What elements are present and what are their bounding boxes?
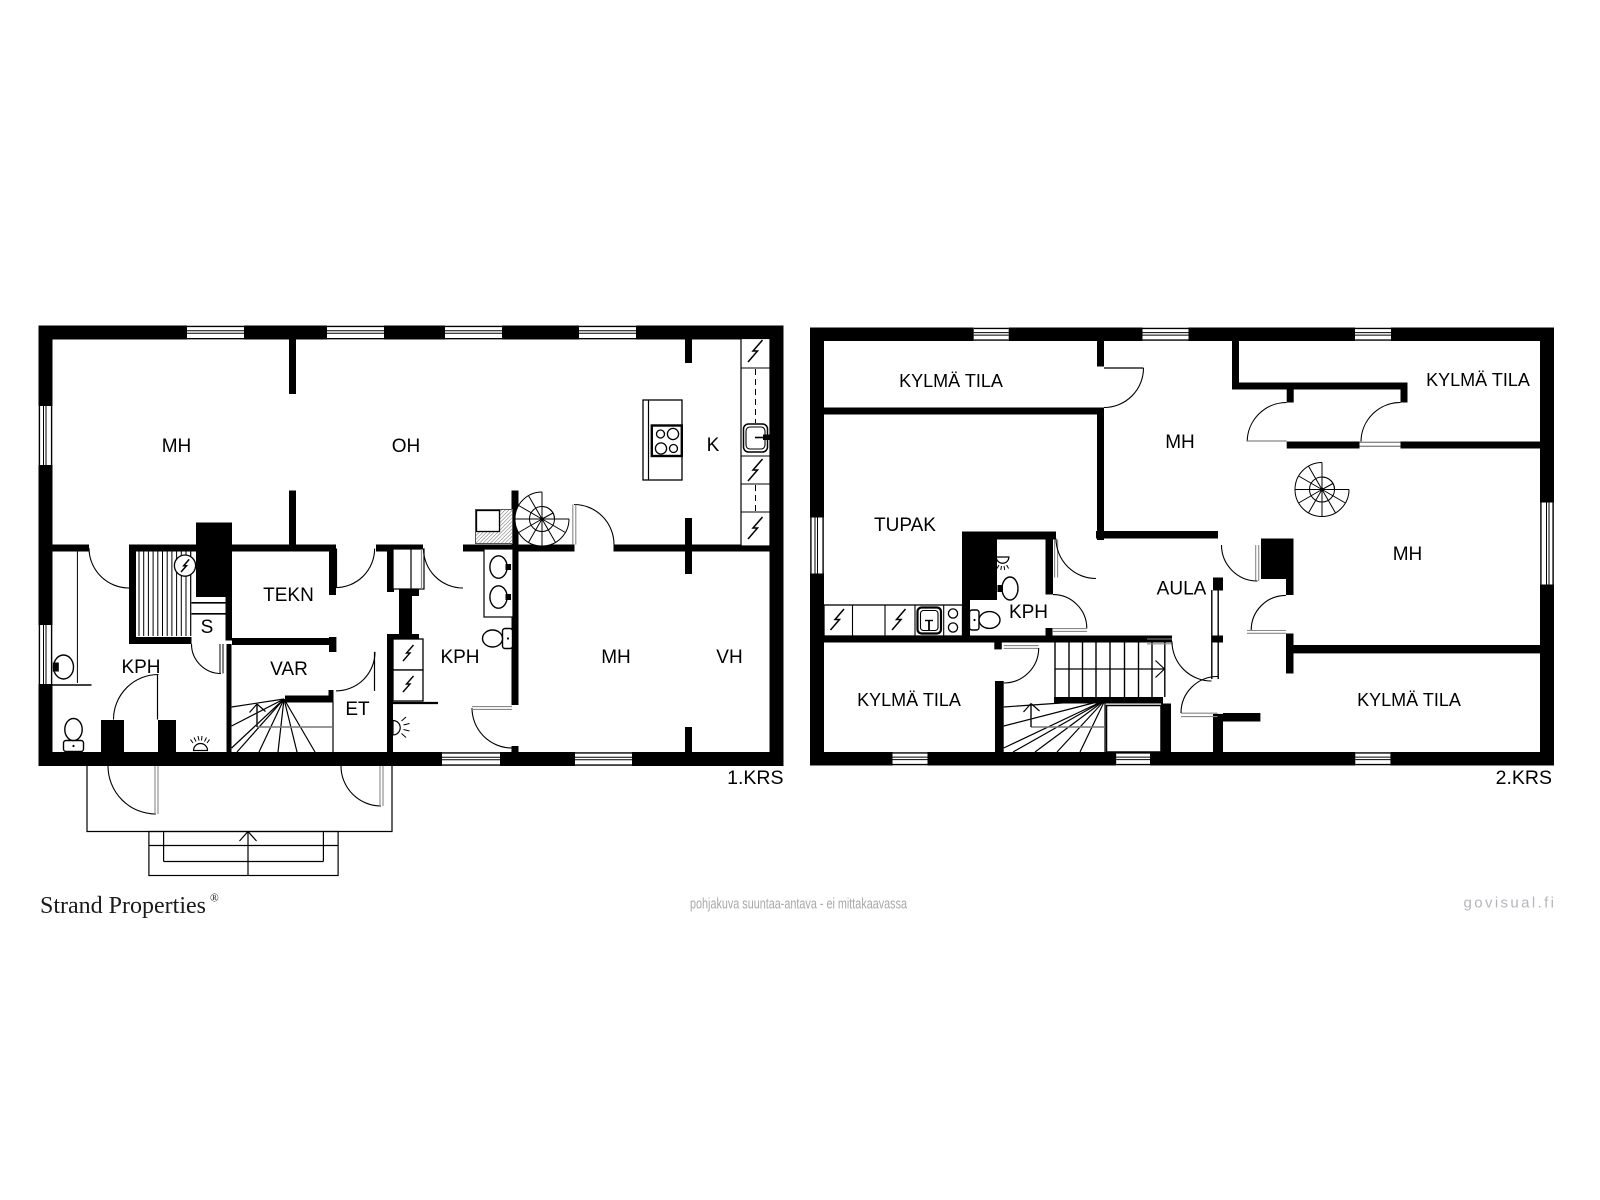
- svg-text:TUPAK: TUPAK: [874, 515, 936, 536]
- svg-text:Strand Properties: Strand Properties: [40, 893, 206, 919]
- svg-text:K: K: [707, 435, 720, 456]
- svg-text:TEKN: TEKN: [263, 585, 314, 606]
- svg-text:VAR: VAR: [270, 659, 308, 680]
- svg-text:MH: MH: [601, 647, 631, 668]
- svg-text:MH: MH: [1393, 544, 1423, 565]
- svg-text:VH: VH: [716, 647, 742, 668]
- svg-text:ET: ET: [345, 699, 370, 720]
- svg-text:KYLMÄ TILA: KYLMÄ TILA: [899, 371, 1003, 391]
- svg-text:MH: MH: [162, 436, 192, 457]
- svg-text:KPH: KPH: [121, 657, 160, 678]
- svg-text:pohjakuva suuntaa-antava - ei: pohjakuva suuntaa-antava - ei mittakaava…: [690, 896, 907, 913]
- svg-text:KPH: KPH: [1009, 602, 1048, 623]
- svg-text:KPH: KPH: [440, 647, 479, 668]
- svg-text:KYLMÄ TILA: KYLMÄ TILA: [1357, 690, 1461, 710]
- svg-text:®: ®: [210, 893, 219, 905]
- svg-text:1.KRS: 1.KRS: [727, 767, 783, 789]
- svg-text:KYLMÄ TILA: KYLMÄ TILA: [857, 690, 961, 710]
- svg-text:KYLMÄ TILA: KYLMÄ TILA: [1426, 370, 1530, 390]
- svg-text:OH: OH: [392, 436, 421, 457]
- svg-text:AULA: AULA: [1157, 579, 1207, 600]
- svg-text:2.KRS: 2.KRS: [1496, 767, 1552, 789]
- svg-text:MH: MH: [1165, 432, 1195, 453]
- svg-text:S: S: [201, 617, 214, 638]
